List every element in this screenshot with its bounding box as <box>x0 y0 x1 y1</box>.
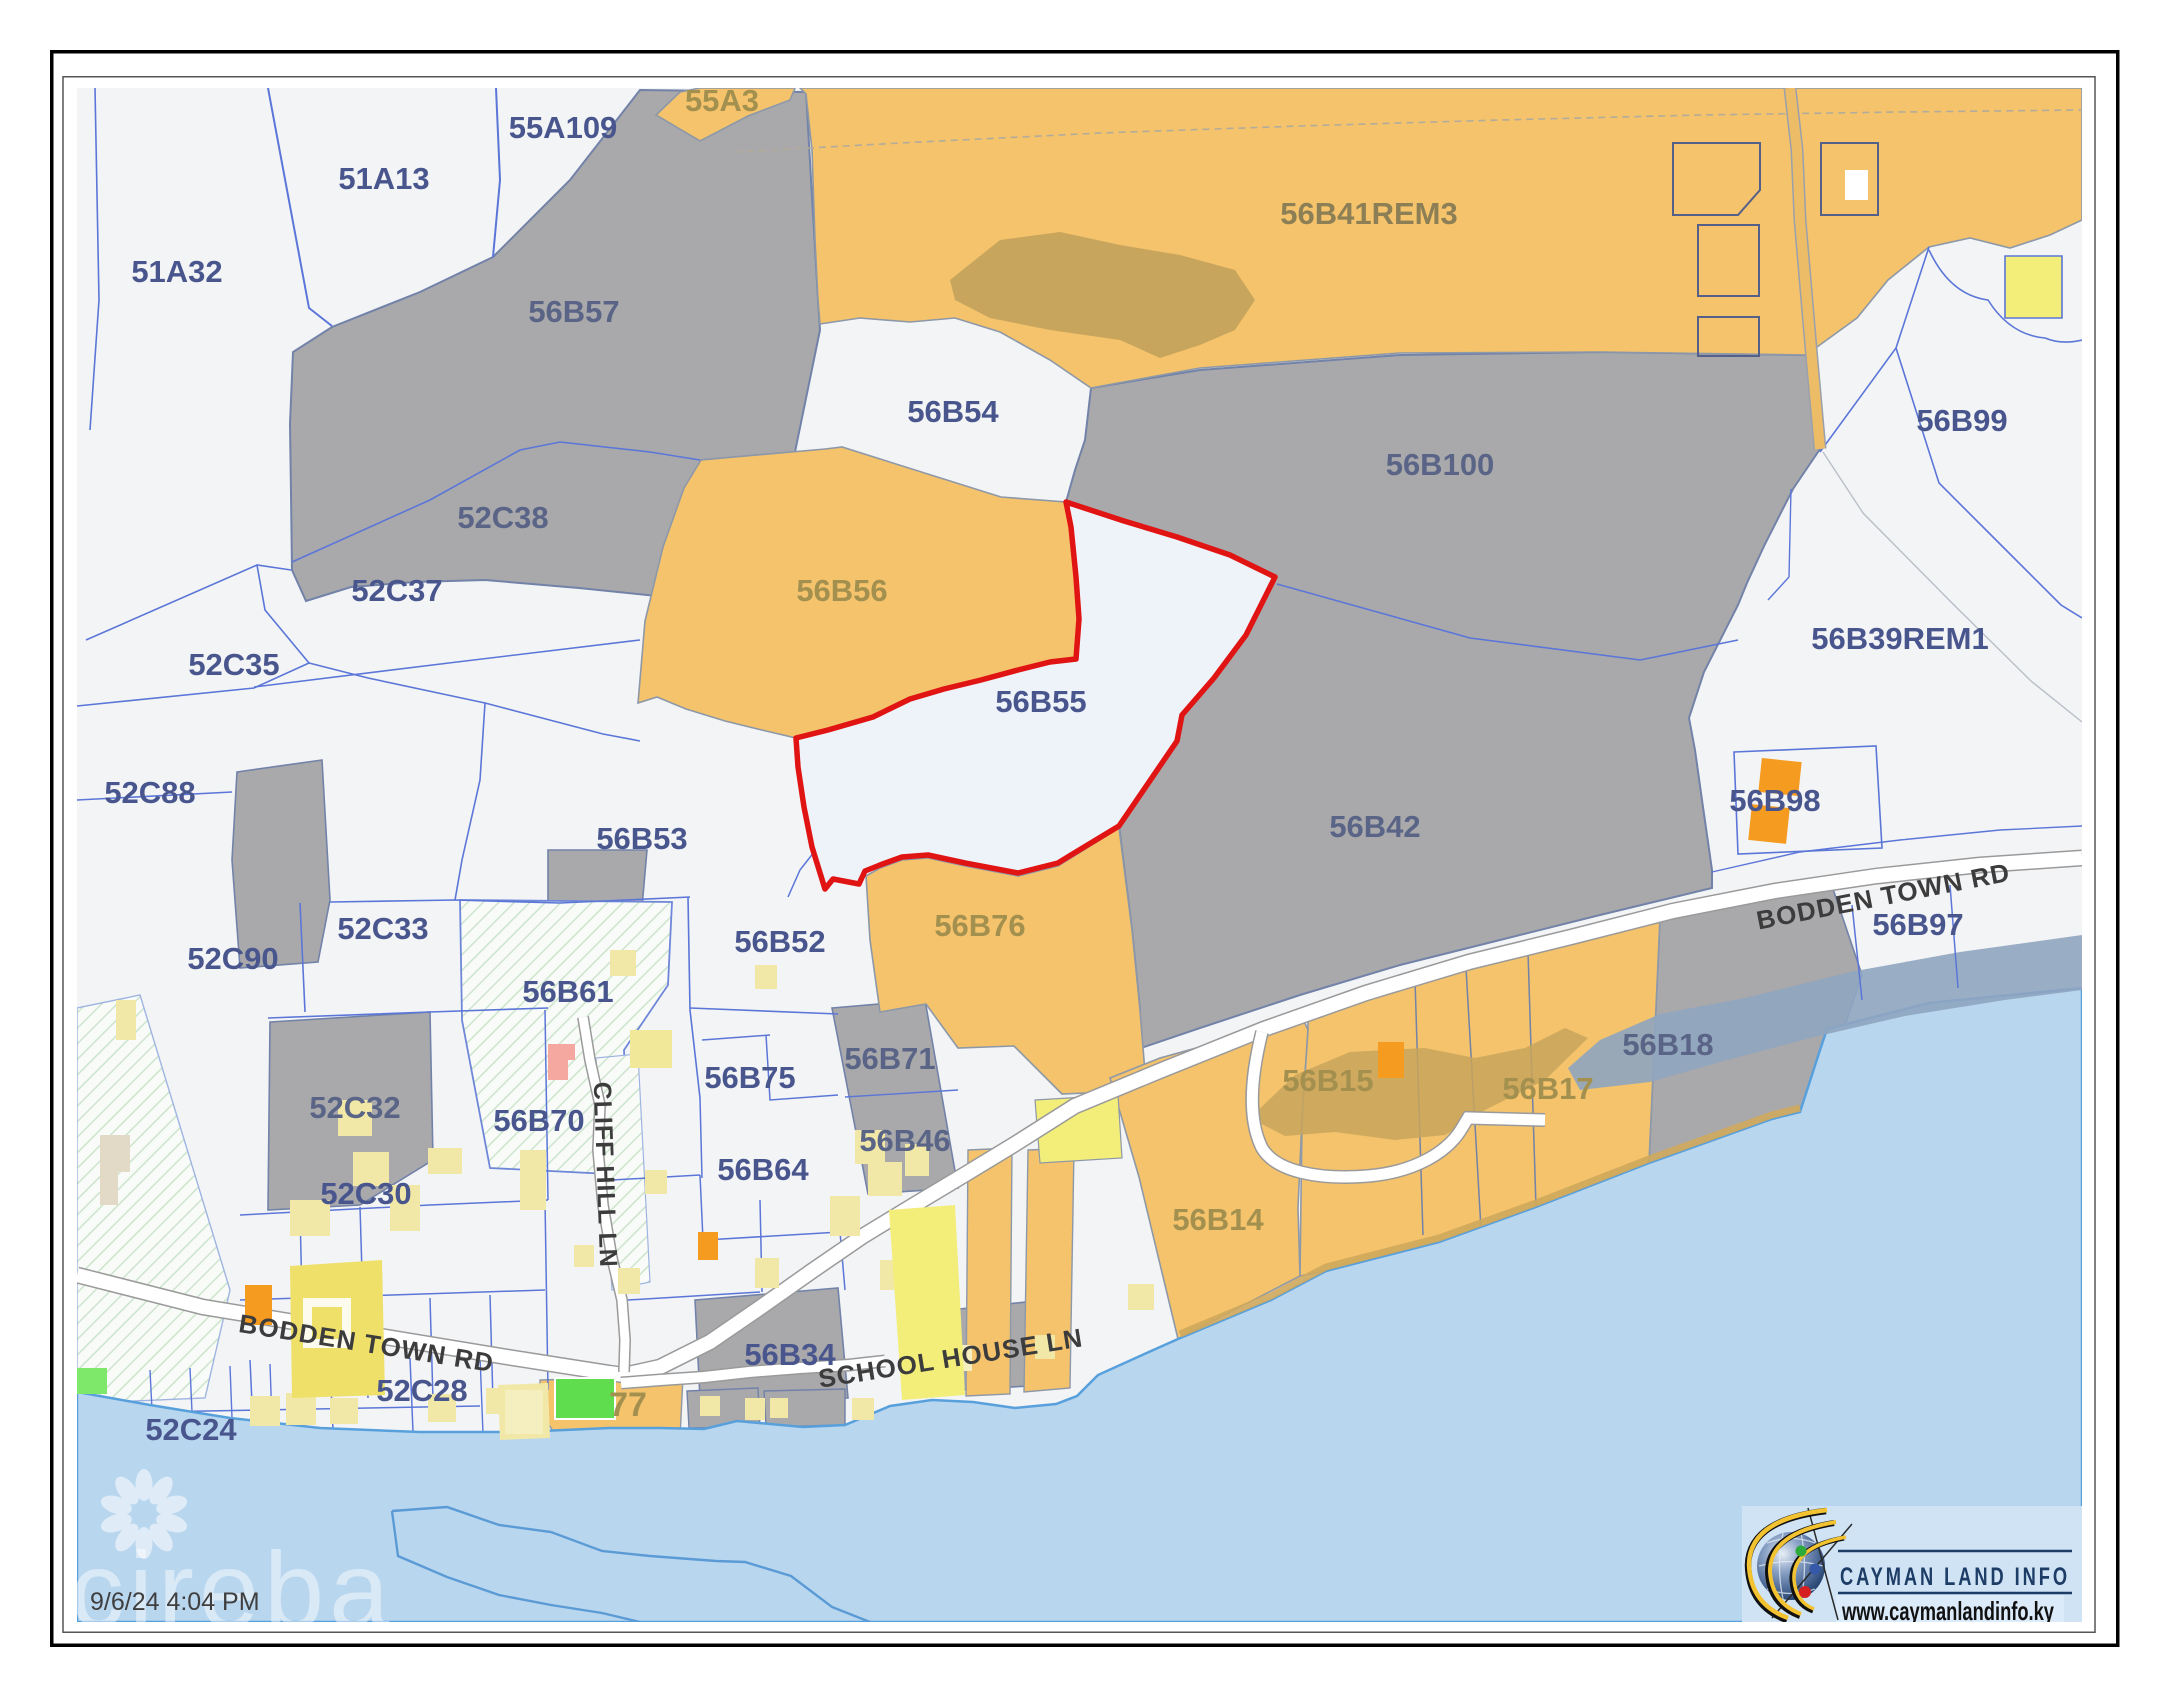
svg-text:56B39REM1: 56B39REM1 <box>1811 621 1988 656</box>
svg-text:52C37: 52C37 <box>351 573 442 608</box>
svg-text:51A32: 51A32 <box>131 254 222 289</box>
svg-text:56B41REM3: 56B41REM3 <box>1280 196 1457 231</box>
svg-text:56B71: 56B71 <box>844 1041 935 1076</box>
svg-text:51A13: 51A13 <box>338 161 429 196</box>
svg-text:56B100: 56B100 <box>1386 447 1495 482</box>
svg-text:www.caymanlandinfo.ky: www.caymanlandinfo.ky <box>1841 1596 2054 1626</box>
svg-text:56B70: 56B70 <box>493 1103 584 1138</box>
svg-text:56B56: 56B56 <box>796 573 887 608</box>
svg-text:52C28: 52C28 <box>376 1373 467 1408</box>
svg-text:56B76: 56B76 <box>934 908 1025 943</box>
svg-text:56B18: 56B18 <box>1622 1027 1713 1062</box>
svg-text:77: 77 <box>609 1386 647 1424</box>
svg-text:52C88: 52C88 <box>104 775 195 810</box>
svg-text:9/6/24 4:04 PM: 9/6/24 4:04 PM <box>90 1588 260 1616</box>
svg-text:55A3: 55A3 <box>685 83 759 118</box>
svg-text:56B98: 56B98 <box>1729 783 1820 818</box>
svg-text:56B99: 56B99 <box>1916 403 2007 438</box>
svg-text:56B61: 56B61 <box>522 974 613 1009</box>
svg-text:56B64: 56B64 <box>717 1152 809 1187</box>
svg-text:56B52: 56B52 <box>734 924 825 959</box>
svg-text:56B46: 56B46 <box>859 1123 950 1158</box>
svg-text:CAYMAN LAND INFO: CAYMAN LAND INFO <box>1840 1563 2070 1591</box>
svg-text:52C24: 52C24 <box>145 1412 237 1447</box>
svg-text:52C38: 52C38 <box>457 500 548 535</box>
svg-text:52C33: 52C33 <box>337 911 428 946</box>
svg-text:56B14: 56B14 <box>1172 1202 1264 1237</box>
svg-text:52C90: 52C90 <box>187 941 278 976</box>
svg-text:56B42: 56B42 <box>1329 809 1420 844</box>
svg-text:55A109: 55A109 <box>509 110 618 145</box>
svg-text:52C32: 52C32 <box>309 1090 400 1125</box>
svg-text:56B53: 56B53 <box>596 821 687 856</box>
svg-text:52C30: 52C30 <box>320 1176 411 1211</box>
svg-text:56B17: 56B17 <box>1502 1071 1593 1106</box>
svg-text:56B55: 56B55 <box>995 684 1086 719</box>
svg-text:52C35: 52C35 <box>188 647 279 682</box>
svg-text:56B15: 56B15 <box>1282 1063 1373 1098</box>
svg-text:56B57: 56B57 <box>528 294 619 329</box>
svg-text:56B54: 56B54 <box>907 394 999 429</box>
svg-text:56B75: 56B75 <box>704 1060 795 1095</box>
svg-text:56B97: 56B97 <box>1872 907 1963 942</box>
